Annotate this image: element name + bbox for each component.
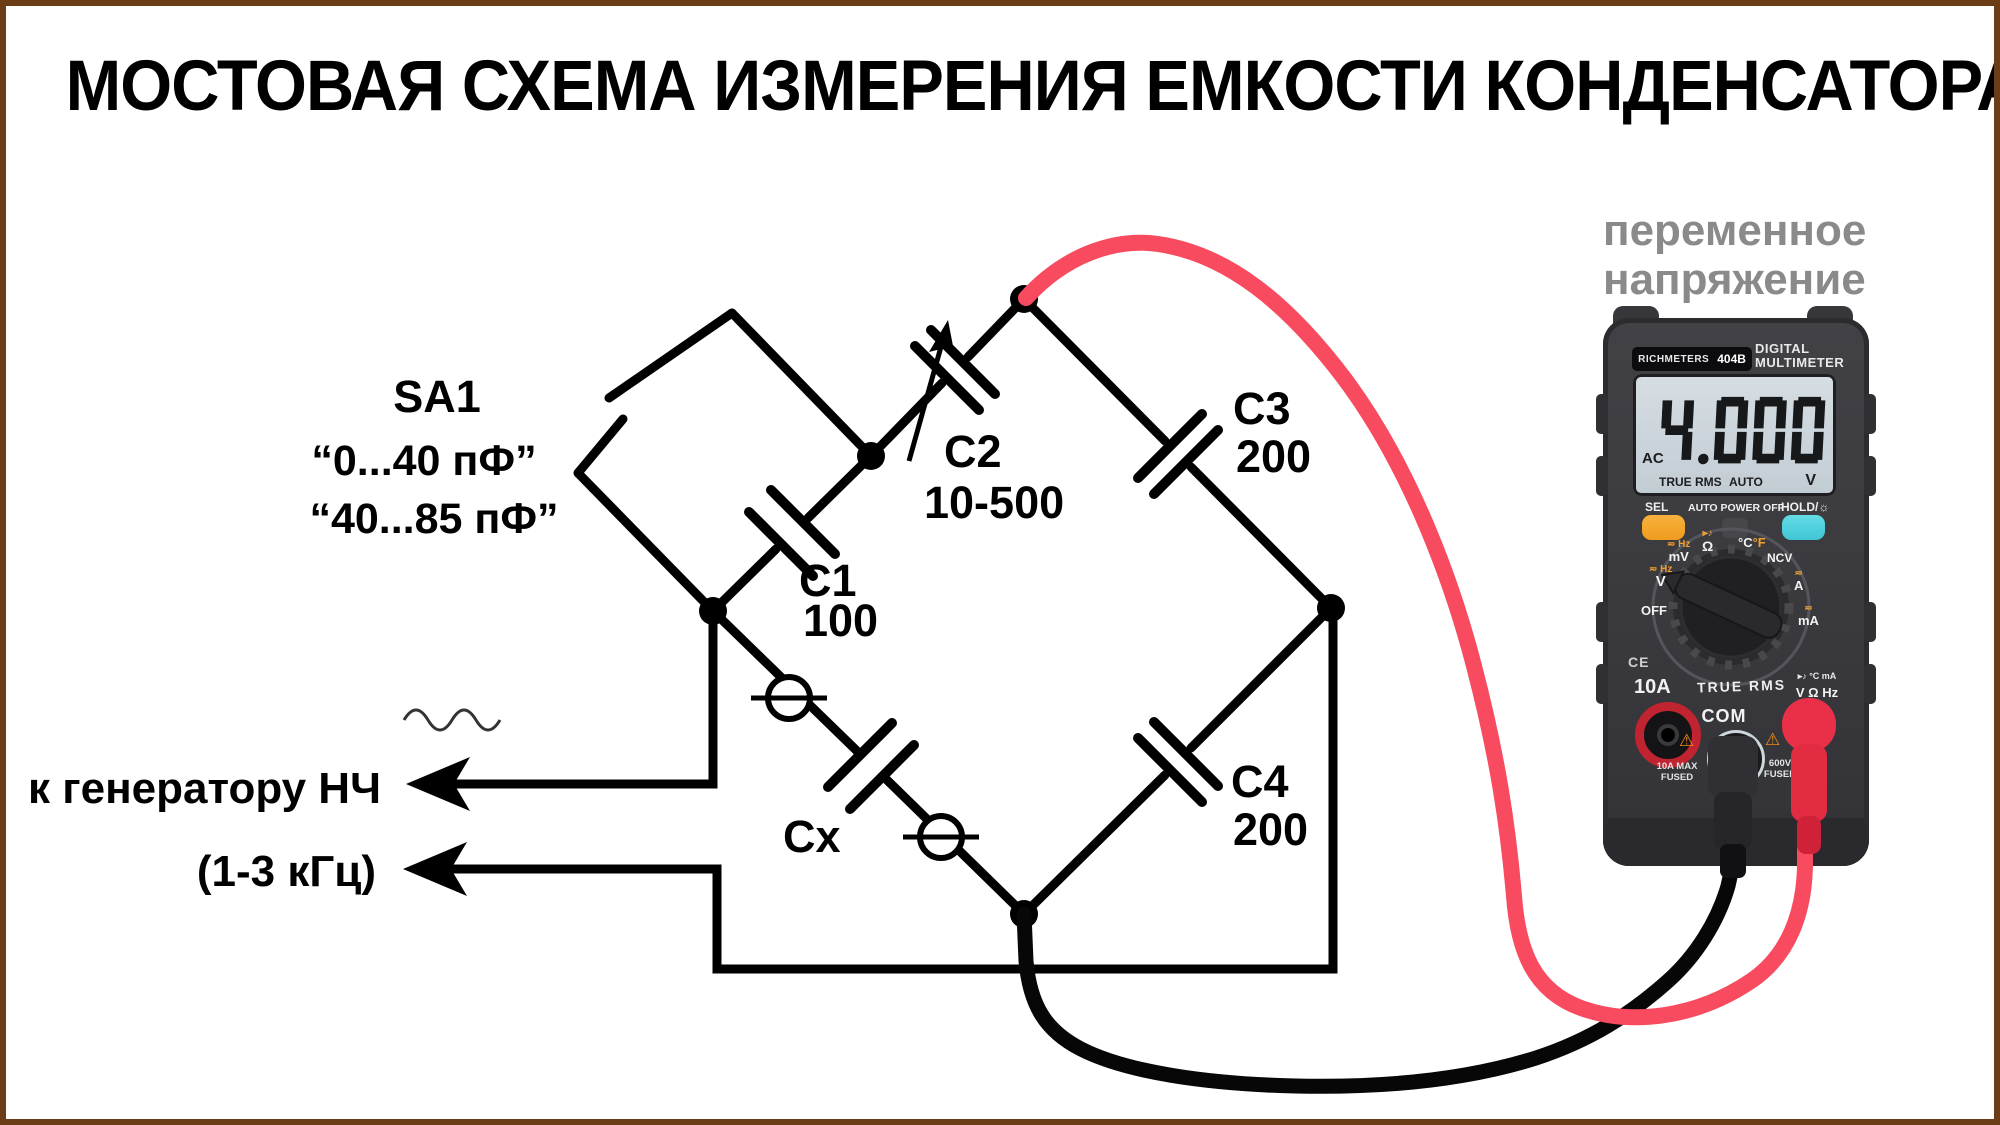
generator-wire-1	[418, 611, 713, 784]
c3-label: C3	[1233, 383, 1291, 434]
wire	[808, 456, 871, 518]
lcd-unit: V	[1805, 472, 1816, 490]
fuse-note-left: 10A MAXFUSED	[1645, 762, 1709, 783]
multimeter: RICHMETERS 404B DIGITAL MULTIMETER AC TR…	[1603, 306, 1869, 878]
meter-grip-tab	[1864, 456, 1876, 496]
bridge-circuit	[415, 299, 1333, 969]
cx-label: Cx	[783, 811, 841, 862]
lcd-true-rms: TRUE RMS	[1659, 475, 1722, 489]
lcd-auto: AUTO	[1729, 475, 1763, 489]
true-rms-label: TRUE RMS	[1697, 676, 1787, 695]
c1-plate	[771, 490, 835, 554]
meter-grip-tab	[1864, 394, 1876, 434]
ac-voltage-note: переменное напряжение	[1603, 206, 1866, 304]
arrowhead-to-generator	[406, 757, 470, 811]
wire	[713, 611, 857, 751]
c3-plate	[1138, 414, 1202, 478]
c3-value: 200	[1236, 431, 1311, 482]
jack-10a-label: 10A	[1634, 676, 1671, 699]
dial-mv: ≂ HzmV	[1667, 539, 1690, 563]
generator-label-2: (1-3 кГц)	[197, 847, 376, 896]
dial-ncv: NCV	[1767, 552, 1792, 564]
black-probe-cable	[1024, 868, 1732, 1086]
hold-label: HOLD/☼	[1781, 500, 1829, 514]
sel-label: SEL	[1645, 500, 1668, 514]
warning-icon: ⚠	[1765, 730, 1780, 750]
cx-plate	[828, 723, 892, 787]
junction-dots	[699, 285, 1345, 928]
c3-plate	[1154, 430, 1218, 494]
dial-milliamp: ≂mA	[1798, 603, 1819, 627]
c2-label: C2	[944, 426, 1002, 477]
device-type-line1: DIGITAL	[1755, 342, 1844, 356]
dial-ohm: ▸♪Ω	[1702, 528, 1713, 552]
c1-label: C1	[799, 555, 857, 606]
jack-right-label: V Ω Hz	[1779, 685, 1855, 700]
dial-temp: °C°F	[1738, 537, 1766, 549]
meter-base	[1603, 818, 1869, 866]
c4-label: C4	[1231, 756, 1289, 807]
c1-plate	[749, 512, 813, 576]
schematic-labels: SA1 “0...40 пФ” “40...85 пФ” C1 100 C2 1…	[28, 371, 1311, 896]
lcd-display: AC TRUE RMS AUTO V	[1633, 374, 1836, 496]
sine-wave-icon	[404, 710, 500, 730]
wire	[1191, 467, 1331, 608]
cx-terminals	[751, 677, 979, 858]
meter-grip-tab	[1864, 602, 1876, 642]
generator-wire-2	[415, 608, 1333, 969]
seven-segment-value	[1659, 392, 1831, 470]
meter-grip-tab	[1596, 456, 1608, 496]
switch-blade	[609, 313, 732, 398]
c1-value: 100	[803, 595, 878, 646]
switch-contact	[578, 419, 623, 473]
dial-vac: ≂ HzV	[1649, 564, 1672, 588]
c2-plate	[915, 346, 979, 410]
jack-right-icons: ▸♪ °C mA	[1779, 671, 1855, 682]
fuse-note-right: 600VFUSED	[1755, 759, 1805, 780]
cx-plate	[850, 745, 914, 809]
range2-label: “40...85 пФ”	[309, 495, 558, 543]
c4-plate	[1154, 722, 1218, 786]
generator-label-1: к генератору НЧ	[28, 764, 381, 813]
ac-voltage-note-line2: напряжение	[1603, 255, 1866, 304]
model-number: 404B	[1717, 352, 1746, 366]
wire	[713, 549, 776, 611]
c2-value: 10-500	[924, 477, 1064, 528]
sa1-label: SA1	[393, 371, 481, 422]
wire	[1024, 775, 1165, 914]
ce-mark: CE	[1628, 654, 1649, 670]
c4-plate	[1138, 738, 1202, 802]
wire	[1024, 299, 1165, 441]
device-type-line2: MULTIMETER	[1755, 356, 1844, 370]
brand-badge: RICHMETERS 404B	[1632, 347, 1752, 371]
auto-power-off-label: AUTO POWER OFF	[1688, 502, 1784, 514]
meter-grip-tab	[1596, 394, 1608, 434]
wire	[578, 473, 713, 611]
range1-label: “0...40 пФ”	[311, 437, 536, 485]
capacitor-plates	[749, 330, 1218, 809]
dial-off: OFF	[1641, 605, 1667, 617]
device-type-label: DIGITAL MULTIMETER	[1755, 342, 1844, 370]
wire	[968, 299, 1024, 357]
dial-amp: ≂A	[1794, 568, 1803, 592]
c2-plate	[931, 330, 995, 394]
wire	[1191, 608, 1331, 748]
diagram-frame: МОСТОВАЯ СХЕМА ИЗМЕРЕНИЯ ЕМКОСТИ КОНДЕНС…	[0, 0, 2000, 1125]
meter-grip-tab	[1864, 664, 1876, 704]
ac-voltage-note-line1: переменное	[1603, 206, 1866, 255]
jack-10a-hole	[1657, 724, 1679, 746]
meter-grip-tab	[1596, 602, 1608, 642]
warning-icon: ⚠	[1679, 731, 1694, 751]
meter-grip-tab	[1596, 664, 1608, 704]
brand-name: RICHMETERS	[1638, 354, 1709, 365]
jack-com-label: COM	[1689, 706, 1759, 727]
wire	[887, 780, 1024, 914]
c2-variable-arrow	[909, 320, 953, 461]
page-title: МОСТОВАЯ СХЕМА ИЗМЕРЕНИЯ ЕМКОСТИ КОНДЕНС…	[66, 46, 1935, 127]
wire	[871, 383, 942, 456]
c4-value: 200	[1233, 804, 1308, 855]
arrowhead-to-generator	[403, 842, 467, 896]
switch-arm	[732, 313, 871, 456]
